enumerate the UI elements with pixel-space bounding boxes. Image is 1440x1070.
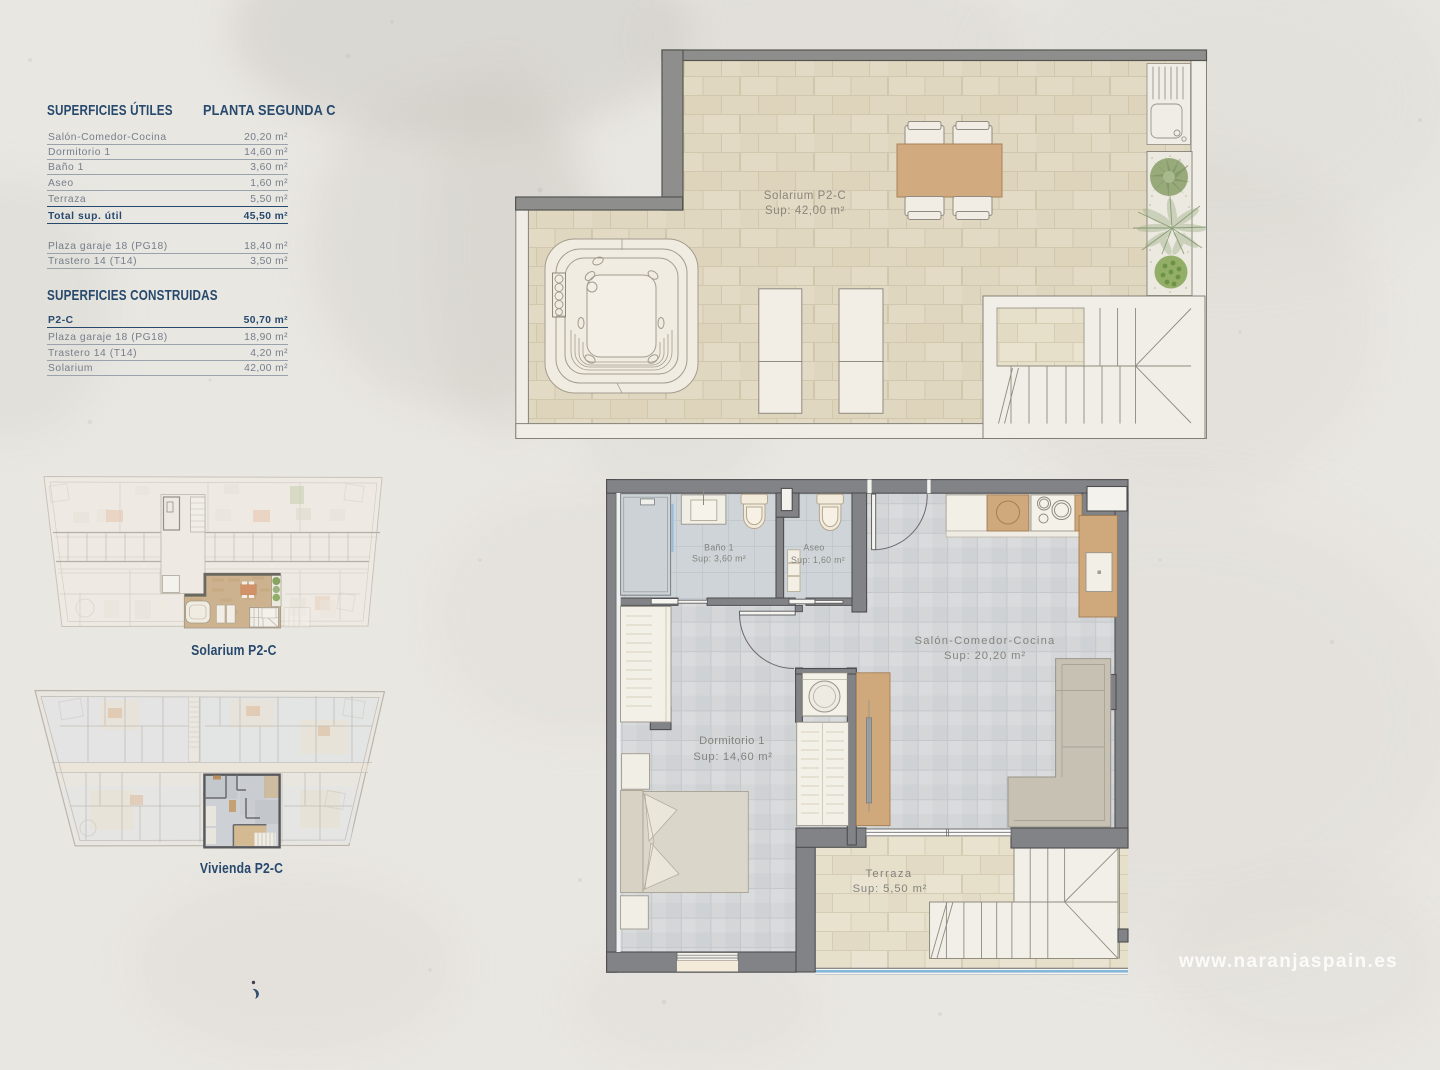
svg-text:Sup: 42,00 m²: Sup: 42,00 m² <box>765 205 845 217</box>
svg-text:Baño 1: Baño 1 <box>704 543 734 553</box>
svg-text:Terraza: Terraza <box>865 868 912 880</box>
svg-text:Sup: 3,60 m²: Sup: 3,60 m² <box>692 554 746 564</box>
svg-text:Solarium P2-C: Solarium P2-C <box>764 190 847 202</box>
svg-text:Sup: 1,60 m²: Sup: 1,60 m² <box>791 555 845 565</box>
svg-text:Sup: 20,20 m²: Sup: 20,20 m² <box>944 650 1026 662</box>
svg-text:Sup: 14,60 m²: Sup: 14,60 m² <box>693 751 772 763</box>
svg-text:Sup: 5,50 m²: Sup: 5,50 m² <box>853 883 928 895</box>
svg-text:Salón-Comedor-Cocina: Salón-Comedor-Cocina <box>915 635 1056 647</box>
svg-text:Aseo: Aseo <box>803 543 824 553</box>
svg-text:Dormitorio 1: Dormitorio 1 <box>699 735 765 747</box>
